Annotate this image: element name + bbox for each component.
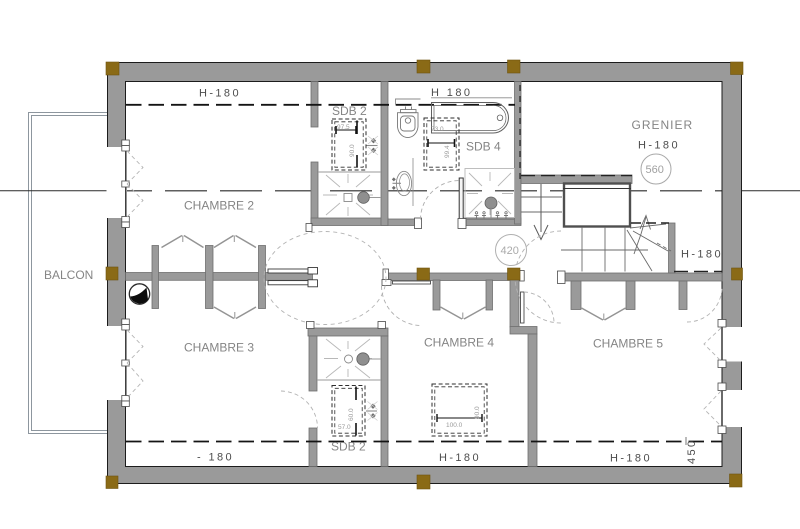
svg-text:57.0: 57.0 xyxy=(338,424,351,431)
svg-text:H-180: H-180 xyxy=(610,453,652,465)
svg-text:560: 560 xyxy=(646,164,664,176)
svg-text:H-180: H-180 xyxy=(439,452,481,464)
svg-text:99.4: 99.4 xyxy=(444,145,451,158)
svg-text:420: 420 xyxy=(501,245,519,257)
svg-text:BALCON: BALCON xyxy=(44,268,93,282)
svg-text:CHAMBRE 5: CHAMBRE 5 xyxy=(593,337,663,351)
svg-text:CHAMBRE 4: CHAMBRE 4 xyxy=(424,336,494,350)
svg-text:SDB 2: SDB 2 xyxy=(331,440,366,454)
svg-text:- 180: - 180 xyxy=(197,452,234,464)
svg-text:SDB 2: SDB 2 xyxy=(332,104,367,118)
svg-text:H 180: H 180 xyxy=(431,87,472,99)
svg-text:GRENIER: GRENIER xyxy=(632,118,694,132)
svg-text:100.0: 100.0 xyxy=(446,422,463,429)
svg-text:H-180: H-180 xyxy=(681,249,723,261)
svg-text:CHAMBRE 2: CHAMBRE 2 xyxy=(184,199,254,213)
svg-text:450: 450 xyxy=(686,438,698,464)
svg-text:97.5: 97.5 xyxy=(337,124,350,131)
svg-text:SDB 4: SDB 4 xyxy=(466,140,501,154)
svg-text:90.0: 90.0 xyxy=(349,144,356,157)
svg-text:CHAMBRE 3: CHAMBRE 3 xyxy=(184,341,254,355)
svg-text:H-180: H-180 xyxy=(638,140,680,152)
svg-text:73.0: 73.0 xyxy=(431,126,444,133)
svg-text:H-180: H-180 xyxy=(199,88,241,100)
svg-text:90.0: 90.0 xyxy=(474,406,481,419)
svg-text:60.0: 60.0 xyxy=(348,408,355,421)
